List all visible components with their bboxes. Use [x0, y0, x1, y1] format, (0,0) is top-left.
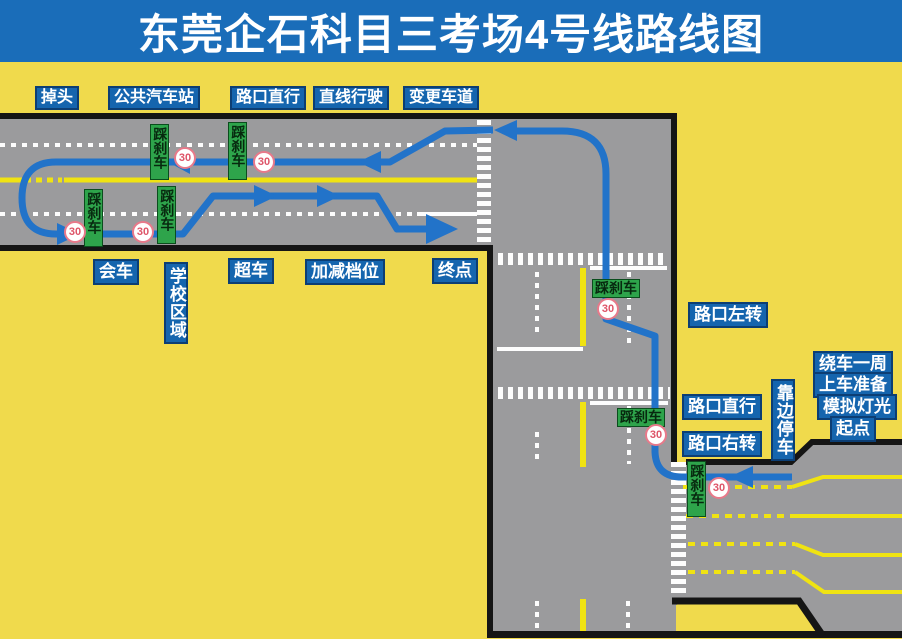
label-gear-shift: 加减档位	[305, 259, 385, 285]
label-junction-straight-right-text: 路口直行	[688, 397, 756, 416]
speed-30-badge-6-text: 30	[650, 429, 662, 441]
label-straight-driving: 直线行驶	[313, 86, 389, 110]
label-overtaking-text: 超车	[234, 261, 268, 280]
label-junction-left-turn: 路口左转	[688, 302, 768, 328]
label-start-point: 起点	[830, 416, 876, 442]
brake-marker-1: 踩刹车	[150, 124, 169, 180]
speed-30-badge-2: 30	[253, 151, 275, 173]
brake-marker-6-text: 踩刹车	[620, 409, 662, 425]
label-light-simulation-text: 模拟灯光	[823, 397, 891, 416]
speed-30-badge-1-text: 30	[179, 152, 191, 164]
label-junction-right-turn-text: 路口右转	[688, 434, 756, 453]
speed-30-badge-4-text: 30	[137, 226, 149, 238]
speed-30-badge-3-text: 30	[69, 226, 81, 238]
brake-marker-5: 踩刹车	[592, 279, 640, 298]
speed-30-badge-7-text: 30	[713, 482, 725, 494]
label-school-zone: 学校区域	[164, 262, 188, 344]
label-boarding-prep-text: 上车准备	[819, 375, 887, 394]
label-junction-left-turn-text: 路口左转	[694, 305, 762, 324]
brake-marker-2: 踩刹车	[228, 122, 247, 180]
label-straight-driving-text: 直线行驶	[319, 89, 383, 106]
label-pull-over: 靠边停车	[771, 379, 795, 461]
brake-marker-3: 踩刹车	[84, 189, 103, 247]
speed-30-badge-4: 30	[132, 221, 154, 243]
label-change-lane-text: 变更车道	[409, 89, 473, 106]
label-junction-straight-top-text: 路口直行	[236, 89, 300, 106]
label-school-zone-text: 学校区域	[167, 267, 186, 339]
speed-30-badge-3: 30	[64, 221, 86, 243]
brake-marker-1-text: 踩刹车	[152, 127, 168, 169]
label-pull-over-text: 靠边停车	[774, 384, 793, 456]
brake-marker-3-text: 踩刹车	[86, 192, 102, 234]
label-overtaking: 超车	[228, 258, 274, 284]
label-start-point-text: 起点	[836, 419, 870, 438]
label-junction-straight-right: 路口直行	[682, 394, 762, 420]
label-junction-straight-top: 路口直行	[230, 86, 306, 110]
brake-marker-4: 踩刹车	[157, 186, 176, 244]
label-gear-shift-text: 加减档位	[311, 262, 379, 281]
label-u-turn-text: 掉头	[41, 89, 73, 106]
label-bus-station: 公共汽车站	[108, 86, 200, 110]
brake-marker-7: 踩刹车	[687, 461, 706, 517]
label-change-lane: 变更车道	[403, 86, 479, 110]
speed-30-badge-5: 30	[597, 298, 619, 320]
speed-30-badge-2-text: 30	[258, 156, 270, 168]
route-map: 东莞企石科目三考场4号线路线图	[0, 0, 902, 639]
speed-30-badge-6: 30	[645, 424, 667, 446]
brake-marker-5-text: 踩刹车	[595, 280, 637, 296]
label-bus-station-text: 公共汽车站	[114, 89, 194, 106]
label-meeting-text: 会车	[99, 262, 133, 281]
label-end-point-text: 终点	[438, 261, 472, 280]
speed-30-badge-5-text: 30	[602, 303, 614, 315]
label-junction-right-turn: 路口右转	[682, 431, 762, 457]
brake-marker-2-text: 踩刹车	[230, 125, 246, 167]
label-meeting: 会车	[93, 259, 139, 285]
label-around-vehicle-text: 绕车一周	[819, 354, 887, 373]
brake-marker-7-text: 踩刹车	[689, 464, 705, 506]
speed-30-badge-7: 30	[708, 477, 730, 499]
label-u-turn: 掉头	[35, 86, 79, 110]
label-end-point: 终点	[432, 258, 478, 284]
speed-30-badge-1: 30	[174, 147, 196, 169]
brake-marker-4-text: 踩刹车	[159, 189, 175, 231]
